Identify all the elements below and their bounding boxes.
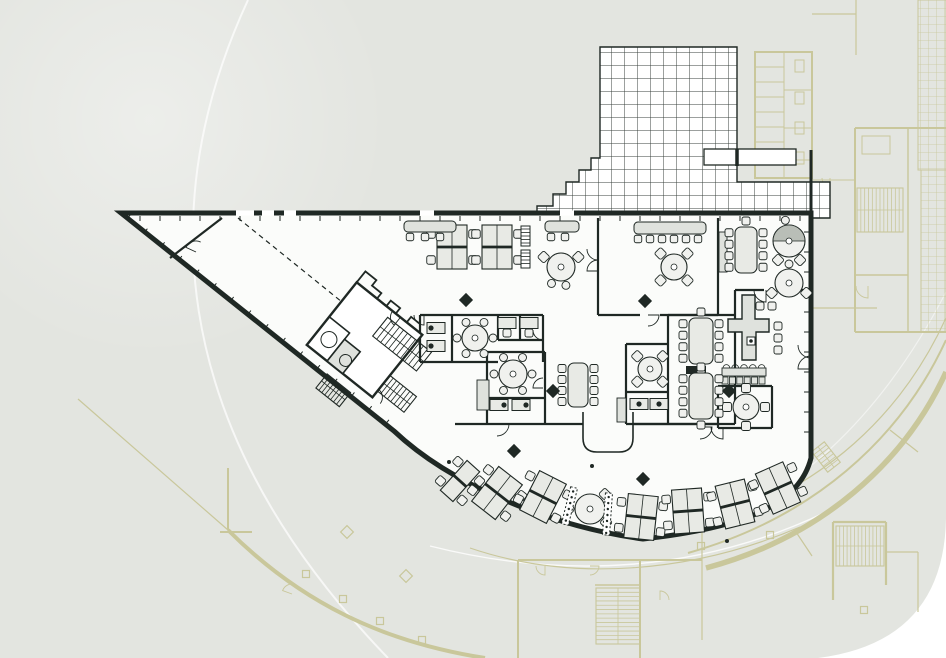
table-top	[689, 318, 713, 364]
chair	[590, 398, 598, 406]
window-glass	[262, 211, 274, 216]
small-desk	[630, 399, 648, 410]
table-center	[472, 335, 478, 341]
chair	[697, 308, 705, 316]
counter	[545, 221, 579, 232]
chair	[759, 263, 767, 271]
chair	[756, 302, 764, 310]
table-center	[786, 280, 792, 286]
chair	[662, 495, 671, 504]
chair	[697, 421, 705, 429]
small-desk	[650, 399, 668, 410]
chair	[462, 318, 470, 326]
desk	[520, 318, 538, 329]
chair	[614, 523, 623, 532]
small-desk	[512, 400, 530, 411]
task-chair	[428, 343, 433, 348]
chair	[774, 334, 782, 342]
table-center	[786, 238, 792, 244]
chair	[715, 354, 723, 362]
chair	[562, 281, 570, 289]
chair	[472, 256, 481, 265]
chair	[500, 354, 508, 362]
chair	[590, 387, 598, 395]
chair	[558, 376, 566, 384]
chair	[528, 370, 536, 378]
counter	[404, 221, 456, 232]
table-top	[689, 373, 713, 419]
chair	[742, 217, 750, 225]
small-desk	[427, 341, 445, 352]
chair	[774, 322, 782, 330]
chair	[715, 343, 723, 351]
window-glass	[236, 211, 254, 216]
chair	[670, 235, 678, 243]
chair	[725, 240, 733, 248]
chair	[558, 398, 566, 406]
chair	[525, 329, 533, 337]
chair	[421, 233, 429, 241]
chair	[768, 302, 776, 310]
chair	[785, 260, 793, 268]
chair	[694, 235, 702, 243]
chair	[558, 365, 566, 373]
chair	[723, 403, 732, 412]
task-chair	[523, 402, 528, 407]
chair	[406, 233, 414, 241]
chair	[715, 398, 723, 406]
column-dot	[447, 460, 451, 464]
chair	[436, 233, 444, 241]
table-top	[735, 227, 757, 273]
chair	[472, 230, 481, 239]
chair	[713, 517, 723, 527]
chair	[679, 386, 687, 394]
chair	[774, 346, 782, 354]
chair	[500, 386, 508, 394]
chair	[742, 422, 751, 431]
table-center	[510, 371, 516, 377]
chair	[715, 409, 723, 417]
chair	[715, 386, 723, 394]
chair	[519, 386, 527, 394]
chair	[759, 240, 767, 248]
equipment-dot	[749, 339, 753, 343]
chair	[742, 384, 751, 393]
task-chair	[636, 401, 641, 406]
task-chair	[428, 325, 433, 330]
chair	[427, 256, 436, 265]
counter	[634, 222, 706, 234]
chair	[547, 233, 555, 241]
locker	[737, 377, 743, 384]
chair	[663, 521, 672, 530]
site-grid-block	[921, 170, 946, 332]
chair	[682, 235, 690, 243]
chair	[759, 252, 767, 260]
site-grid-block	[918, 0, 946, 170]
chair	[519, 354, 527, 362]
shelf	[521, 250, 530, 268]
table-center	[743, 404, 749, 410]
table-center	[647, 366, 653, 372]
chair	[725, 252, 733, 260]
chair	[561, 233, 569, 241]
chair	[715, 375, 723, 383]
locker	[744, 377, 750, 384]
table-center	[558, 264, 564, 270]
chair	[781, 216, 789, 224]
chair	[658, 235, 666, 243]
chair	[679, 409, 687, 417]
table-center	[671, 264, 677, 270]
chair	[679, 331, 687, 339]
shelf	[521, 226, 530, 246]
chair	[634, 235, 642, 243]
chair	[715, 320, 723, 328]
cabinet	[617, 398, 626, 422]
small-desk	[427, 323, 445, 334]
window-glass	[284, 211, 296, 216]
chair	[697, 363, 705, 371]
chair	[548, 279, 556, 287]
window-glass	[560, 211, 574, 216]
chair	[503, 329, 511, 337]
chair	[453, 334, 461, 342]
cabinet	[477, 380, 489, 410]
chair	[761, 403, 770, 412]
chair	[462, 350, 470, 358]
chair	[715, 331, 723, 339]
table-top	[568, 363, 588, 407]
terrace-planter	[704, 149, 796, 165]
chair	[590, 365, 598, 373]
window-glass	[420, 211, 434, 216]
chair	[617, 497, 626, 506]
chair	[679, 398, 687, 406]
chair	[590, 376, 598, 384]
locker	[729, 377, 735, 384]
chair	[679, 343, 687, 351]
chair	[679, 354, 687, 362]
floor-plan-canvas	[0, 0, 946, 658]
chair	[725, 263, 733, 271]
chair	[490, 370, 498, 378]
column-dot	[590, 464, 594, 468]
task-chair	[501, 402, 506, 407]
chair	[646, 235, 654, 243]
column-dot	[725, 539, 729, 543]
chair	[489, 334, 497, 342]
locker	[759, 377, 765, 384]
chair	[480, 350, 488, 358]
task-chair	[656, 401, 661, 406]
small-desk	[490, 400, 508, 411]
chair	[679, 320, 687, 328]
floor-plan-stage	[0, 0, 946, 658]
chair	[480, 318, 488, 326]
radiator	[722, 368, 766, 376]
locker	[752, 377, 758, 384]
table-center	[587, 506, 593, 512]
chair	[725, 229, 733, 237]
chair	[679, 375, 687, 383]
chair	[759, 229, 767, 237]
desk	[498, 318, 516, 329]
chair	[706, 491, 716, 501]
